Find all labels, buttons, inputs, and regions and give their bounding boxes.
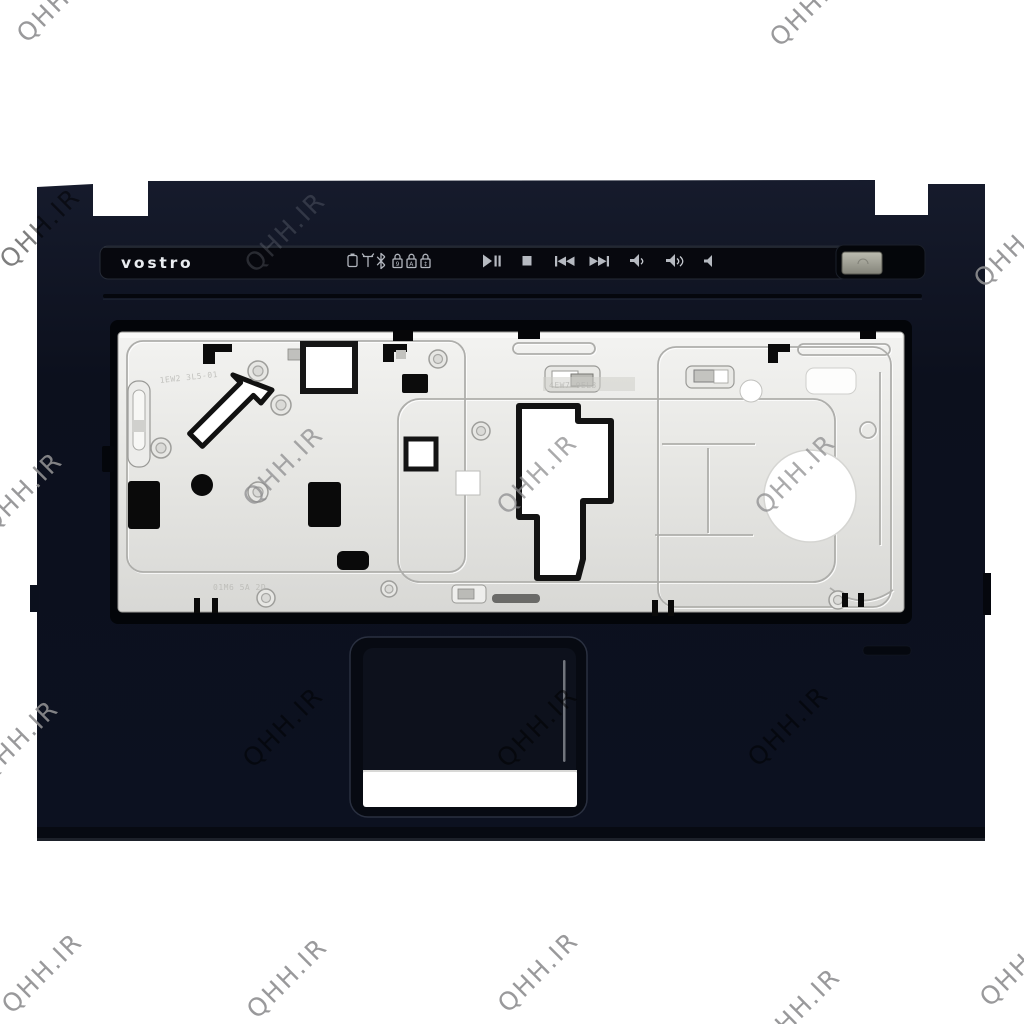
round-hole <box>740 380 762 402</box>
slot-tab <box>132 420 146 432</box>
black-pad <box>128 481 160 529</box>
plate-slit <box>492 594 540 603</box>
power-button <box>842 252 882 274</box>
stop-icon <box>523 256 532 266</box>
keyboard-tray: 1EW2 3L5-01 01M6 5A 2D 4EW7 0EL3 <box>102 320 912 624</box>
right-edge-tab <box>983 573 991 615</box>
plate-gap <box>860 331 876 339</box>
black-hole <box>191 474 213 496</box>
black-pad <box>337 551 369 570</box>
fan-hole <box>764 450 856 542</box>
touchpad-button-cutout <box>363 770 577 807</box>
left-latch-notch <box>102 446 114 472</box>
front-lip-highlight <box>37 838 985 841</box>
product-photo: vostro 9 A ↕ <box>0 0 1024 1024</box>
palmrest-illustration: vostro 9 A ↕ <box>0 0 1024 1024</box>
black-pad <box>308 482 341 527</box>
palmrest-slit <box>863 646 911 655</box>
square-hole <box>456 471 480 495</box>
left-edge-tab <box>30 585 39 612</box>
scroll-zone-line <box>563 660 566 762</box>
square-cutout <box>303 344 355 391</box>
plate-gap <box>393 330 413 341</box>
black-pad <box>402 374 428 393</box>
keyboard-latch-slot <box>128 381 150 467</box>
latch-slider <box>396 350 406 359</box>
scroll-lock-glyph: ↕ <box>423 261 428 268</box>
vostro-logo: vostro <box>121 254 193 272</box>
strip-groove <box>103 294 922 298</box>
num-lock-glyph: 9 <box>396 261 400 268</box>
cutout-edge <box>363 770 577 772</box>
touchpad <box>350 637 587 817</box>
plate-gap <box>518 330 540 339</box>
oval-cutout <box>806 368 856 394</box>
square-cutout <box>406 439 436 469</box>
engraving-text: 4EW7 0EL3 <box>549 381 597 390</box>
latch-mechanism <box>686 366 734 388</box>
power-button-area <box>836 245 925 279</box>
engraving-text: 01M6 5A 2D <box>213 583 266 592</box>
